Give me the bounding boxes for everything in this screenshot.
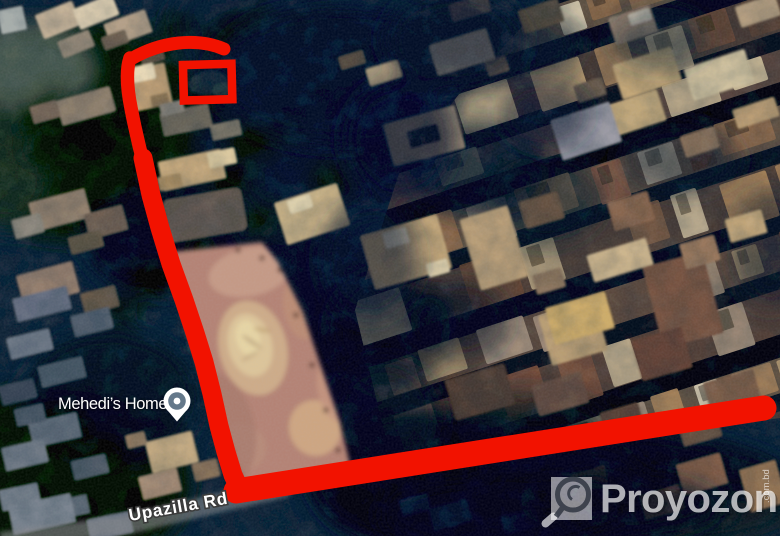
svg-text:Proyozon: Proyozon [600,477,777,521]
svg-text:Mehedi’s Home: Mehedi’s Home [58,395,167,413]
svg-text:.com.bd: .com.bd [761,469,772,503]
